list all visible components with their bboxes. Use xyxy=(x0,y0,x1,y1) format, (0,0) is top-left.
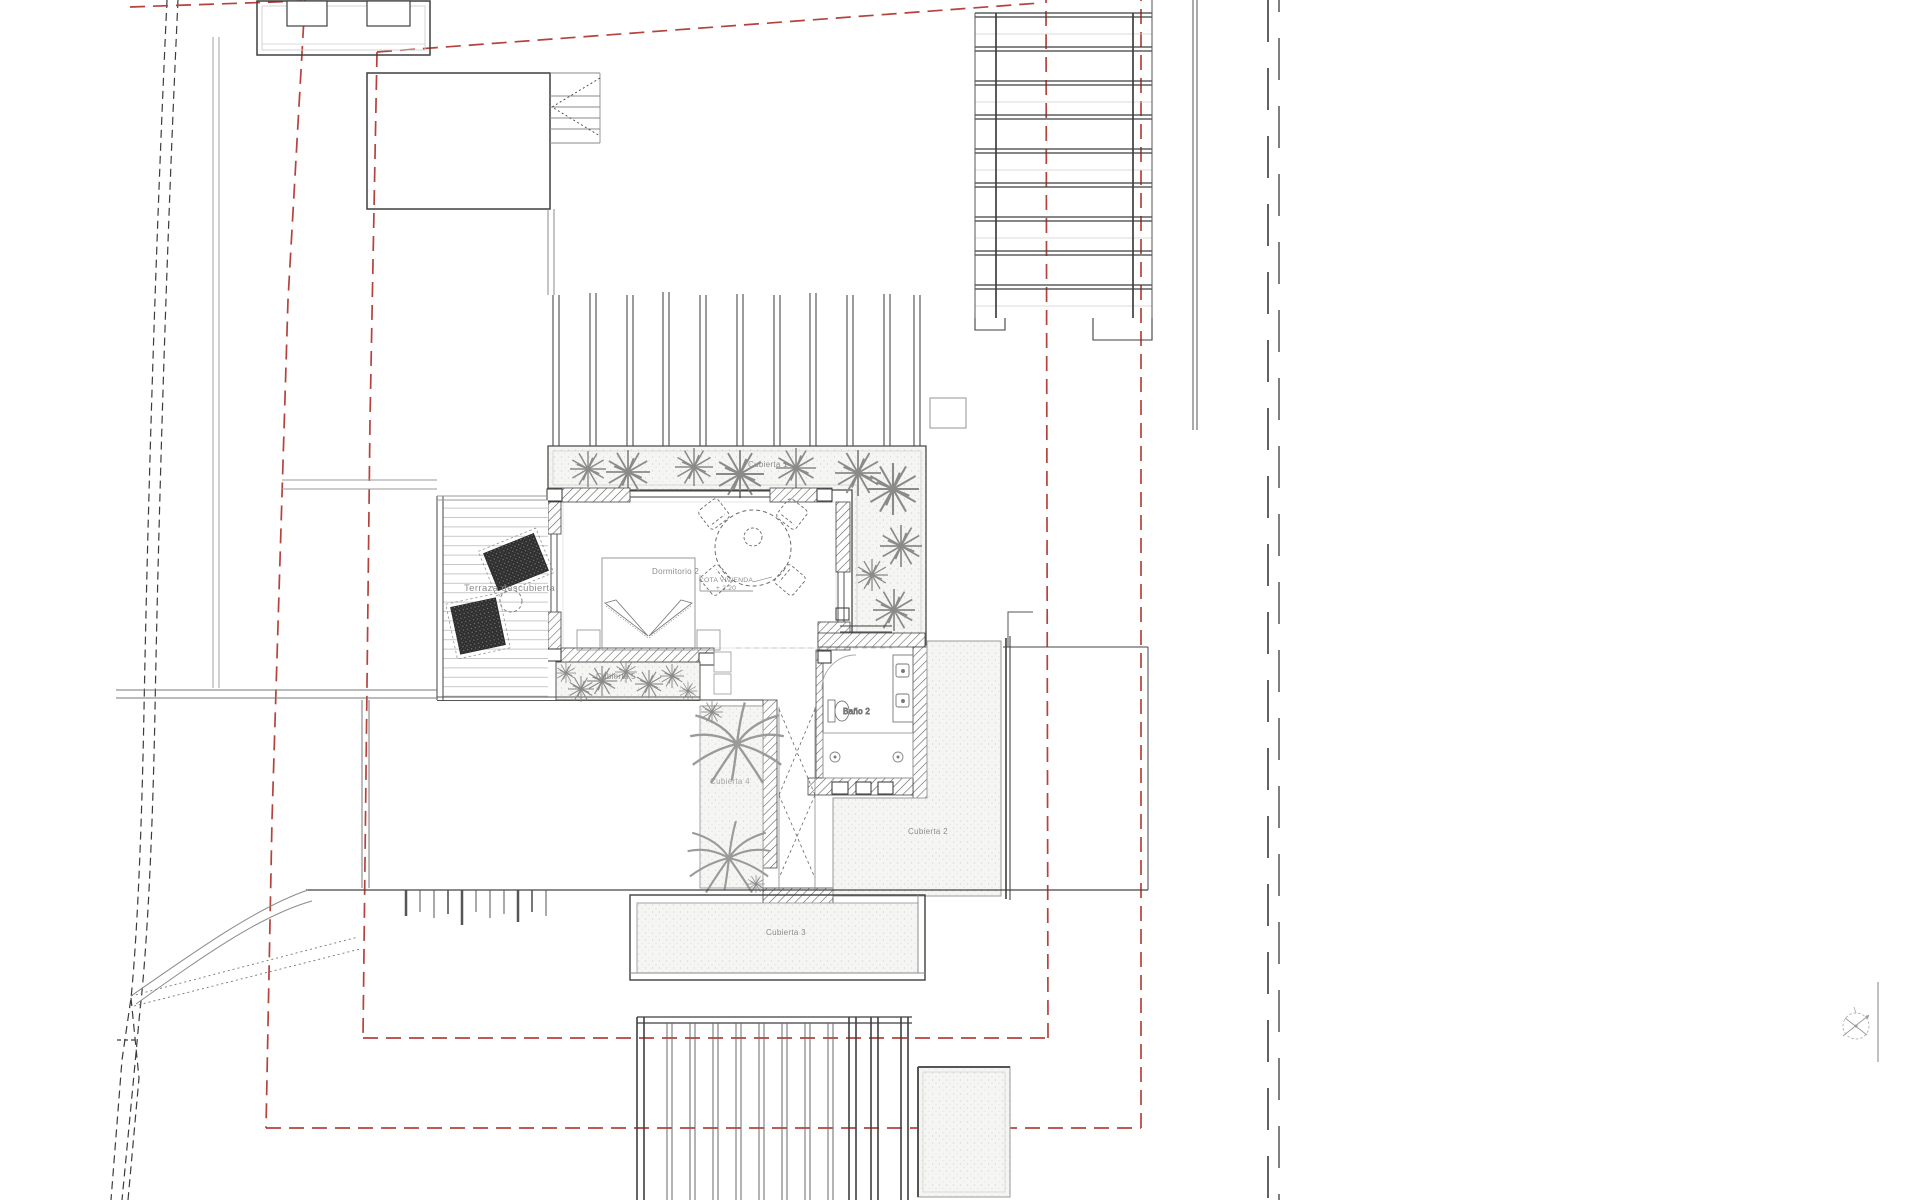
north-compass xyxy=(1843,1007,1869,1039)
label-cubierta-3: Cubierta 3 xyxy=(766,928,806,937)
cota-annotation: COTA VIVIENDA + 2.20 xyxy=(699,575,772,592)
neighbor-stairs xyxy=(550,73,600,143)
closet xyxy=(714,652,731,694)
stairs-structure xyxy=(975,0,1197,430)
planter-cubierta-1: Cubierta 1 xyxy=(548,398,966,645)
roof-notch xyxy=(930,398,966,428)
driveway-curves xyxy=(131,890,360,1006)
small-roof-plot xyxy=(918,1067,1010,1197)
pillow-left xyxy=(605,600,648,636)
pillow-right xyxy=(649,600,692,636)
nightstand-right xyxy=(697,630,720,650)
bathroom: Baño 2 xyxy=(822,655,913,778)
label-cota-value: + 2.20 xyxy=(716,585,736,592)
vanity-sinks xyxy=(893,655,913,722)
parking-ticks xyxy=(406,890,546,925)
chimney-1 xyxy=(287,1,327,26)
chimney-2 xyxy=(367,1,410,26)
drawing-canvas: Cubierta 1 xyxy=(0,0,1920,1200)
bedroom: Dormitorio 2 COTA VIVIENDA + 2.20 xyxy=(577,558,772,650)
shower xyxy=(823,733,913,778)
round-table xyxy=(715,510,791,586)
roof-cubierta-3: Cubierta 3 xyxy=(630,895,925,980)
label-cubierta-4: Cubierta 4 xyxy=(710,777,750,786)
neighbor-building-b xyxy=(367,73,600,295)
neighbor-building-a xyxy=(257,1,430,55)
skylight-x xyxy=(779,707,815,890)
label-terraza: Terraza descubierta xyxy=(464,583,555,594)
right-boundary-lines xyxy=(1268,0,1279,1200)
deck-terraza: Terraza descubierta xyxy=(282,480,555,700)
label-dormitorio: Dormitorio 2 xyxy=(652,567,699,576)
terrain-contour-lines xyxy=(111,0,178,1200)
upper-pergola xyxy=(553,292,920,449)
label-cubierta-5: Cubierta 5 xyxy=(596,672,636,681)
label-cubierta-1: Cubierta 1 xyxy=(748,460,788,469)
lower-pergola xyxy=(637,1017,912,1200)
table-center xyxy=(744,528,762,546)
site-plan-svg: Cubierta 1 xyxy=(0,0,1920,1200)
label-bano: Baño 2 xyxy=(843,707,870,716)
nightstand-left xyxy=(577,630,600,650)
label-cubierta-2: Cubierta 2 xyxy=(908,827,948,836)
plot-boundary-red xyxy=(130,0,1141,1128)
